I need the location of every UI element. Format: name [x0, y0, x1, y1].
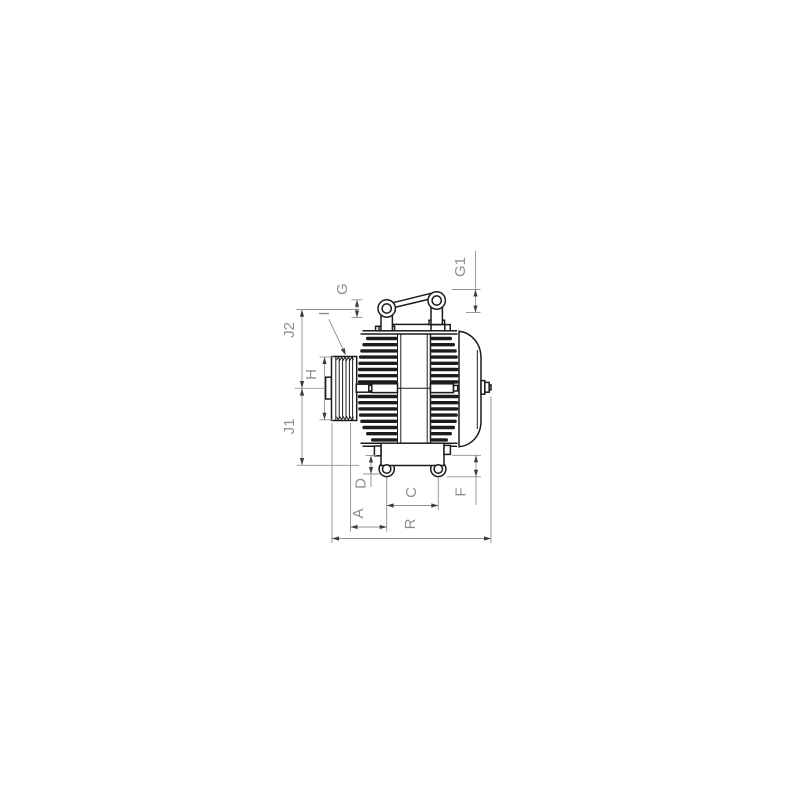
- dimension-d: D: [352, 456, 379, 489]
- dimension-g: G: [334, 283, 363, 317]
- dim-label-r: R: [402, 518, 419, 529]
- rear-cover: [459, 331, 481, 447]
- lug-brace: [394, 298, 433, 307]
- dim-label-c: C: [403, 487, 420, 498]
- through-bolt-right: [431, 384, 454, 393]
- bplus-terminal: [481, 381, 491, 395]
- top-boss: [393, 324, 431, 330]
- lug-brace: [393, 293, 432, 303]
- bottom-mounting-bracket: [374, 443, 450, 476]
- page: J2 J1 H I G: [0, 0, 800, 800]
- bracket-plate: [381, 443, 444, 465]
- dim-label-f: F: [452, 487, 469, 496]
- alternator-technical-drawing: J2 J1 H I G: [0, 0, 800, 800]
- dimension-g1: G1: [452, 251, 481, 313]
- through-bolt-left-head: [369, 385, 372, 391]
- dim-label-h: H: [303, 369, 320, 380]
- bottom-right-lug-hole: [434, 465, 442, 473]
- left-lug-hole: [382, 304, 391, 313]
- dim-label-a: A: [350, 508, 367, 518]
- dim-label-d: D: [352, 478, 369, 489]
- shaft-nut: [326, 377, 332, 399]
- bracket-bolt-right: [444, 445, 450, 454]
- through-bolt-right-head: [454, 385, 458, 391]
- stator-band: [398, 334, 431, 446]
- leader-i: I: [316, 311, 346, 355]
- bottom-left-lug-hole: [383, 465, 391, 473]
- dim-label-i: I: [316, 311, 333, 315]
- dim-label-g: G: [334, 283, 351, 295]
- bracket-bolt-left: [374, 446, 381, 456]
- dim-label-j2: J2: [281, 322, 298, 338]
- through-bolt-left: [372, 384, 398, 393]
- dim-label-j1: J1: [281, 419, 298, 435]
- pulley: [326, 357, 357, 421]
- dimension-f: F: [447, 455, 482, 505]
- dim-label-g1: G1: [452, 257, 469, 277]
- right-lug-hole: [432, 296, 441, 305]
- top-bolt-head-right: [445, 325, 450, 331]
